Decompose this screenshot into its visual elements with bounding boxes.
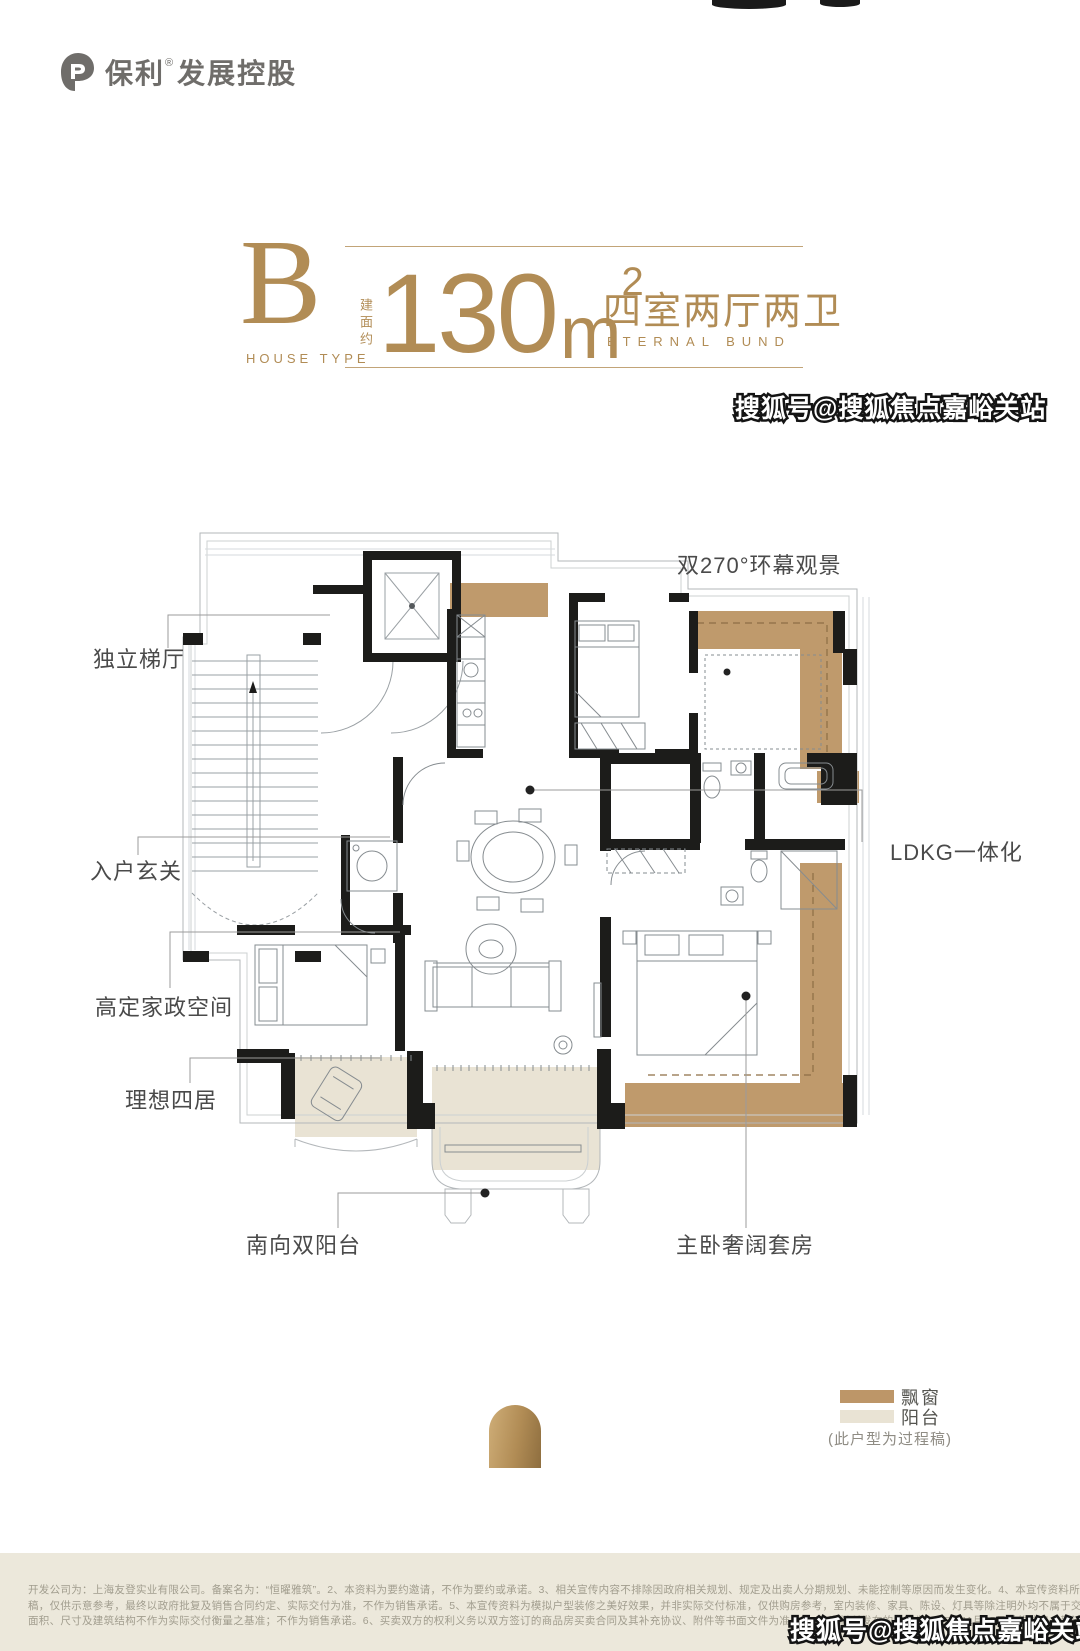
balcony-fills xyxy=(295,1057,600,1170)
brand-suffix: 发展控股 xyxy=(177,52,297,92)
legend-balcony-swatch xyxy=(840,1410,894,1423)
watermark-top: 搜狐号@搜狐焦点嘉峪关站 xyxy=(733,386,1033,430)
arch-icon xyxy=(489,1405,541,1468)
elevator-shaft xyxy=(363,551,461,662)
label-master-suite: 主卧奢阔套房 xyxy=(676,1228,814,1260)
watermark-bottom: 搜狐号@搜狐焦点嘉峪关站 xyxy=(788,1606,1080,1651)
top-cutoff-fragment-right xyxy=(820,0,860,7)
stairs xyxy=(192,655,463,925)
label-panorama-view: 双270°环幕观景 xyxy=(677,548,842,580)
house-type-letter: B xyxy=(240,222,321,344)
area-number: 130 xyxy=(378,268,556,360)
brand-reg-mark: ® xyxy=(165,57,173,69)
brand-logo: 保利 ® 发展控股 xyxy=(55,50,297,94)
rooms-en: ETERNAL BUND xyxy=(607,334,791,349)
top-cutoff-fragment-left xyxy=(712,0,786,9)
legend-note: (此户型为过程稿) xyxy=(828,1428,952,1449)
disclaimer-line-1: 开发公司为：上海友登实业有限公司。备案名为：“恒曜雅筑”。2、本资料为要约邀请，… xyxy=(28,1583,1052,1599)
poster-page: 保利 ® 发展控股 搜狐号@搜狐焦点嘉峪关站 B HOUSE TYPE 建面约 … xyxy=(0,0,1080,1651)
label-ldkg: LDKG一体化 xyxy=(890,835,1023,867)
area-prefix: 建面约 xyxy=(356,298,375,349)
label-housework-space: 高定家政空间 xyxy=(95,990,233,1022)
label-foyer: 入户玄关 xyxy=(90,854,182,886)
floorplan-drawing xyxy=(60,505,915,1300)
label-four-rooms: 理想四居 xyxy=(125,1083,217,1115)
rooms-cn: 四室两厅两卫 xyxy=(603,280,843,335)
title-rule-top xyxy=(345,246,803,247)
label-south-balcony: 南向双阳台 xyxy=(246,1228,361,1260)
svg-text:搜狐号@搜狐焦点嘉峪关站: 搜狐号@搜狐焦点嘉峪关站 xyxy=(790,1616,1080,1645)
svg-text:搜狐号@搜狐焦点嘉峪关站: 搜狐号@搜狐焦点嘉峪关站 xyxy=(735,394,1046,423)
poly-logo-icon xyxy=(55,50,97,94)
legend-balcony-label: 阳台 xyxy=(901,1404,941,1430)
brand-name: 保利 xyxy=(105,52,165,92)
house-type-caption: HOUSE TYPE xyxy=(246,351,370,366)
legend-bay-swatch xyxy=(840,1390,894,1403)
label-lift-hall: 独立梯厅 xyxy=(93,642,185,674)
bay-window-fills xyxy=(450,583,859,1127)
